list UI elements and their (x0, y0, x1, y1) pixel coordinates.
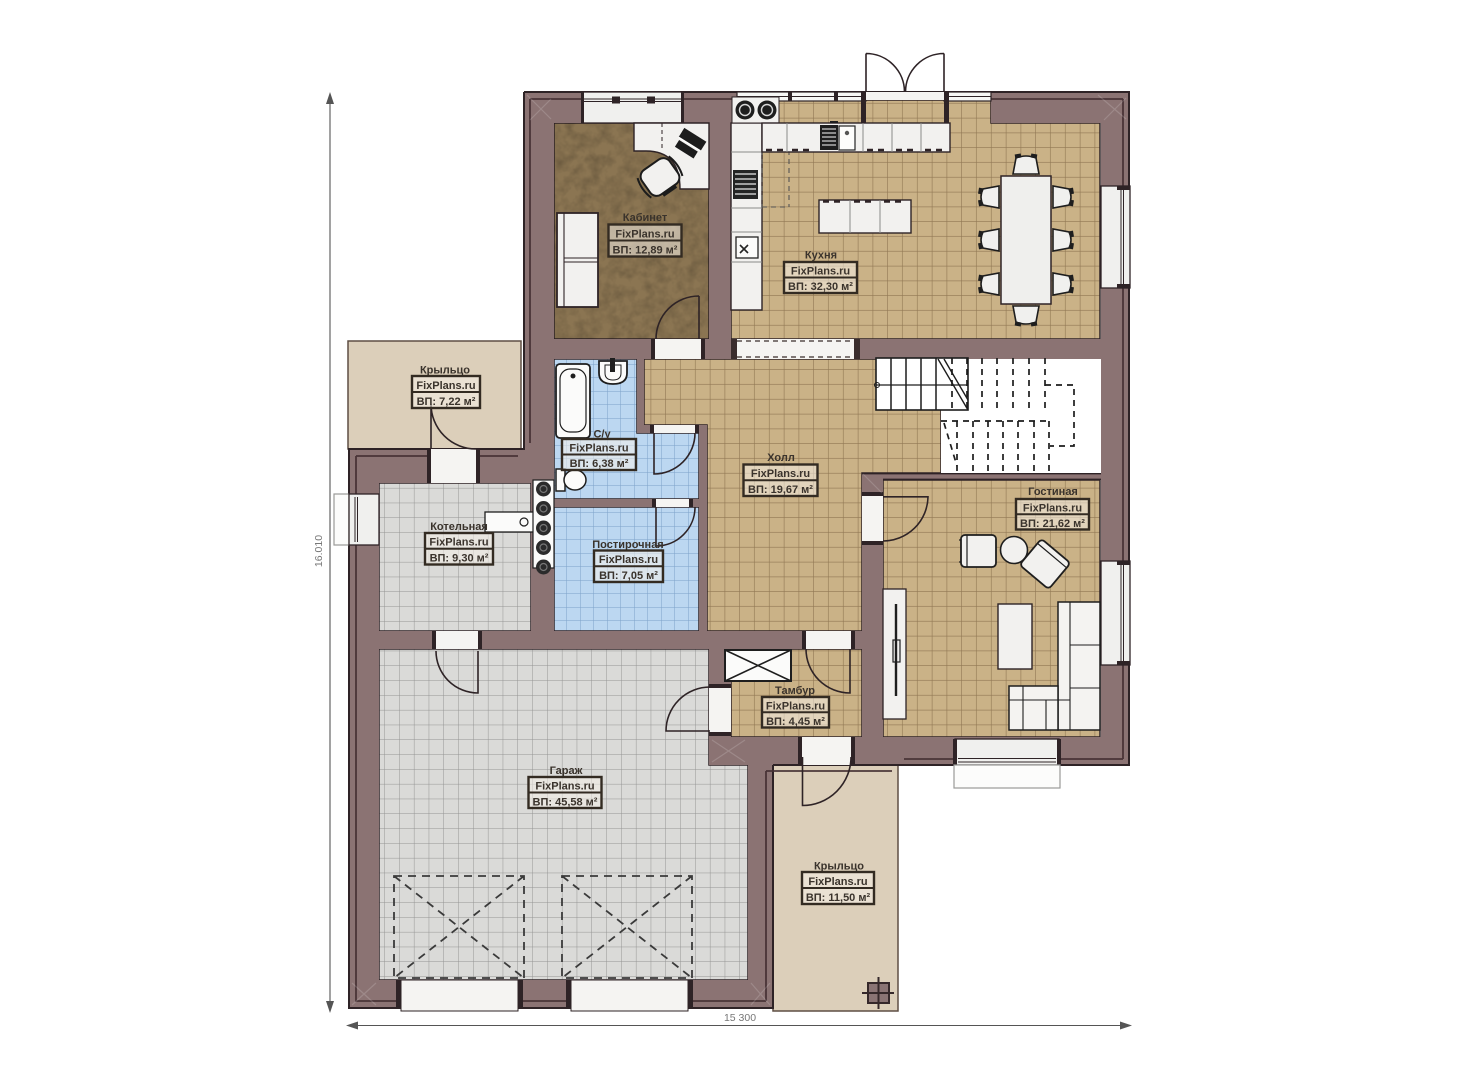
svg-text:Кухня: Кухня (805, 250, 837, 262)
svg-text:15 300: 15 300 (724, 1012, 756, 1024)
svg-text:FixPlans.ru: FixPlans.ru (766, 701, 825, 713)
svg-text:ВП: 4,45 м²: ВП: 4,45 м² (766, 716, 825, 728)
svg-text:Котельная: Котельная (430, 521, 488, 533)
svg-text:FixPlans.ru: FixPlans.ru (599, 554, 658, 566)
svg-text:Крыльцо: Крыльцо (420, 364, 470, 376)
svg-text:Постирочная: Постирочная (592, 539, 663, 551)
svg-text:FixPlans.ru: FixPlans.ru (751, 468, 810, 480)
svg-text:FixPlans.ru: FixPlans.ru (808, 876, 867, 888)
svg-text:ВП: 32,30 м²: ВП: 32,30 м² (788, 281, 853, 293)
svg-text:ВП: 19,67 м²: ВП: 19,67 м² (748, 484, 813, 496)
svg-text:FixPlans.ru: FixPlans.ru (615, 229, 674, 241)
svg-text:Гостиная: Гостиная (1028, 486, 1078, 498)
svg-text:ВП: 6,38 м²: ВП: 6,38 м² (570, 458, 629, 470)
svg-text:Кабинет: Кабинет (623, 212, 668, 224)
svg-text:16.010: 16.010 (313, 535, 325, 567)
svg-text:Холл: Холл (767, 452, 795, 464)
svg-text:ВП: 7,22 м²: ВП: 7,22 м² (417, 396, 476, 408)
svg-text:ВП: 21,62 м²: ВП: 21,62 м² (1020, 518, 1085, 530)
svg-text:ВП: 12,89 м²: ВП: 12,89 м² (613, 245, 678, 257)
svg-text:FixPlans.ru: FixPlans.ru (535, 781, 594, 793)
svg-text:FixPlans.ru: FixPlans.ru (416, 380, 475, 392)
svg-text:Крыльцо: Крыльцо (814, 861, 864, 873)
svg-text:FixPlans.ru: FixPlans.ru (1023, 503, 1082, 515)
svg-text:ВП: 9,30 м²: ВП: 9,30 м² (430, 553, 489, 565)
svg-text:FixPlans.ru: FixPlans.ru (791, 266, 850, 278)
svg-text:FixPlans.ru: FixPlans.ru (569, 443, 628, 455)
svg-text:FixPlans.ru: FixPlans.ru (429, 537, 488, 549)
svg-text:Гараж: Гараж (550, 765, 583, 777)
svg-text:ВП: 11,50 м²: ВП: 11,50 м² (806, 892, 871, 904)
svg-text:ВП: 45,58 м²: ВП: 45,58 м² (533, 797, 598, 809)
svg-text:ВП: 7,05 м²: ВП: 7,05 м² (599, 570, 658, 582)
svg-text:Тамбур: Тамбур (775, 685, 815, 697)
